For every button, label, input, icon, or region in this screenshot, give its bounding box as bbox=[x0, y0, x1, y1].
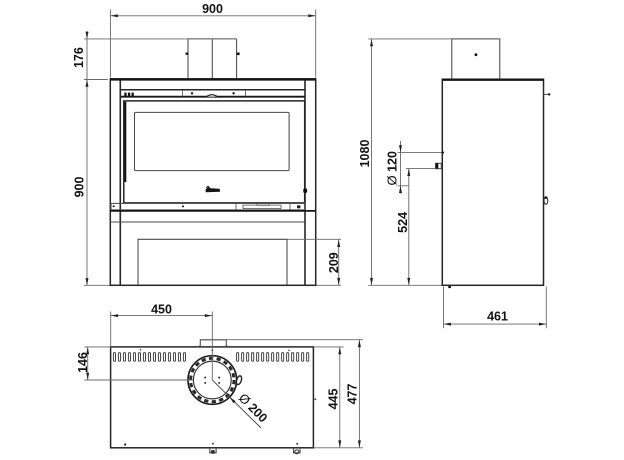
svg-text:445: 445 bbox=[327, 389, 341, 410]
svg-text:450: 450 bbox=[151, 303, 172, 317]
svg-text:461: 461 bbox=[487, 309, 508, 323]
svg-text:524: 524 bbox=[396, 212, 410, 233]
svg-text:Ø 120: Ø 120 bbox=[385, 151, 400, 186]
svg-text:209: 209 bbox=[327, 252, 341, 273]
svg-text:900: 900 bbox=[73, 177, 87, 198]
svg-text:176: 176 bbox=[72, 47, 86, 68]
svg-text:477: 477 bbox=[346, 384, 360, 405]
svg-text:1080: 1080 bbox=[358, 140, 372, 168]
svg-text:900: 900 bbox=[202, 2, 223, 16]
svg-text:146: 146 bbox=[76, 352, 90, 373]
